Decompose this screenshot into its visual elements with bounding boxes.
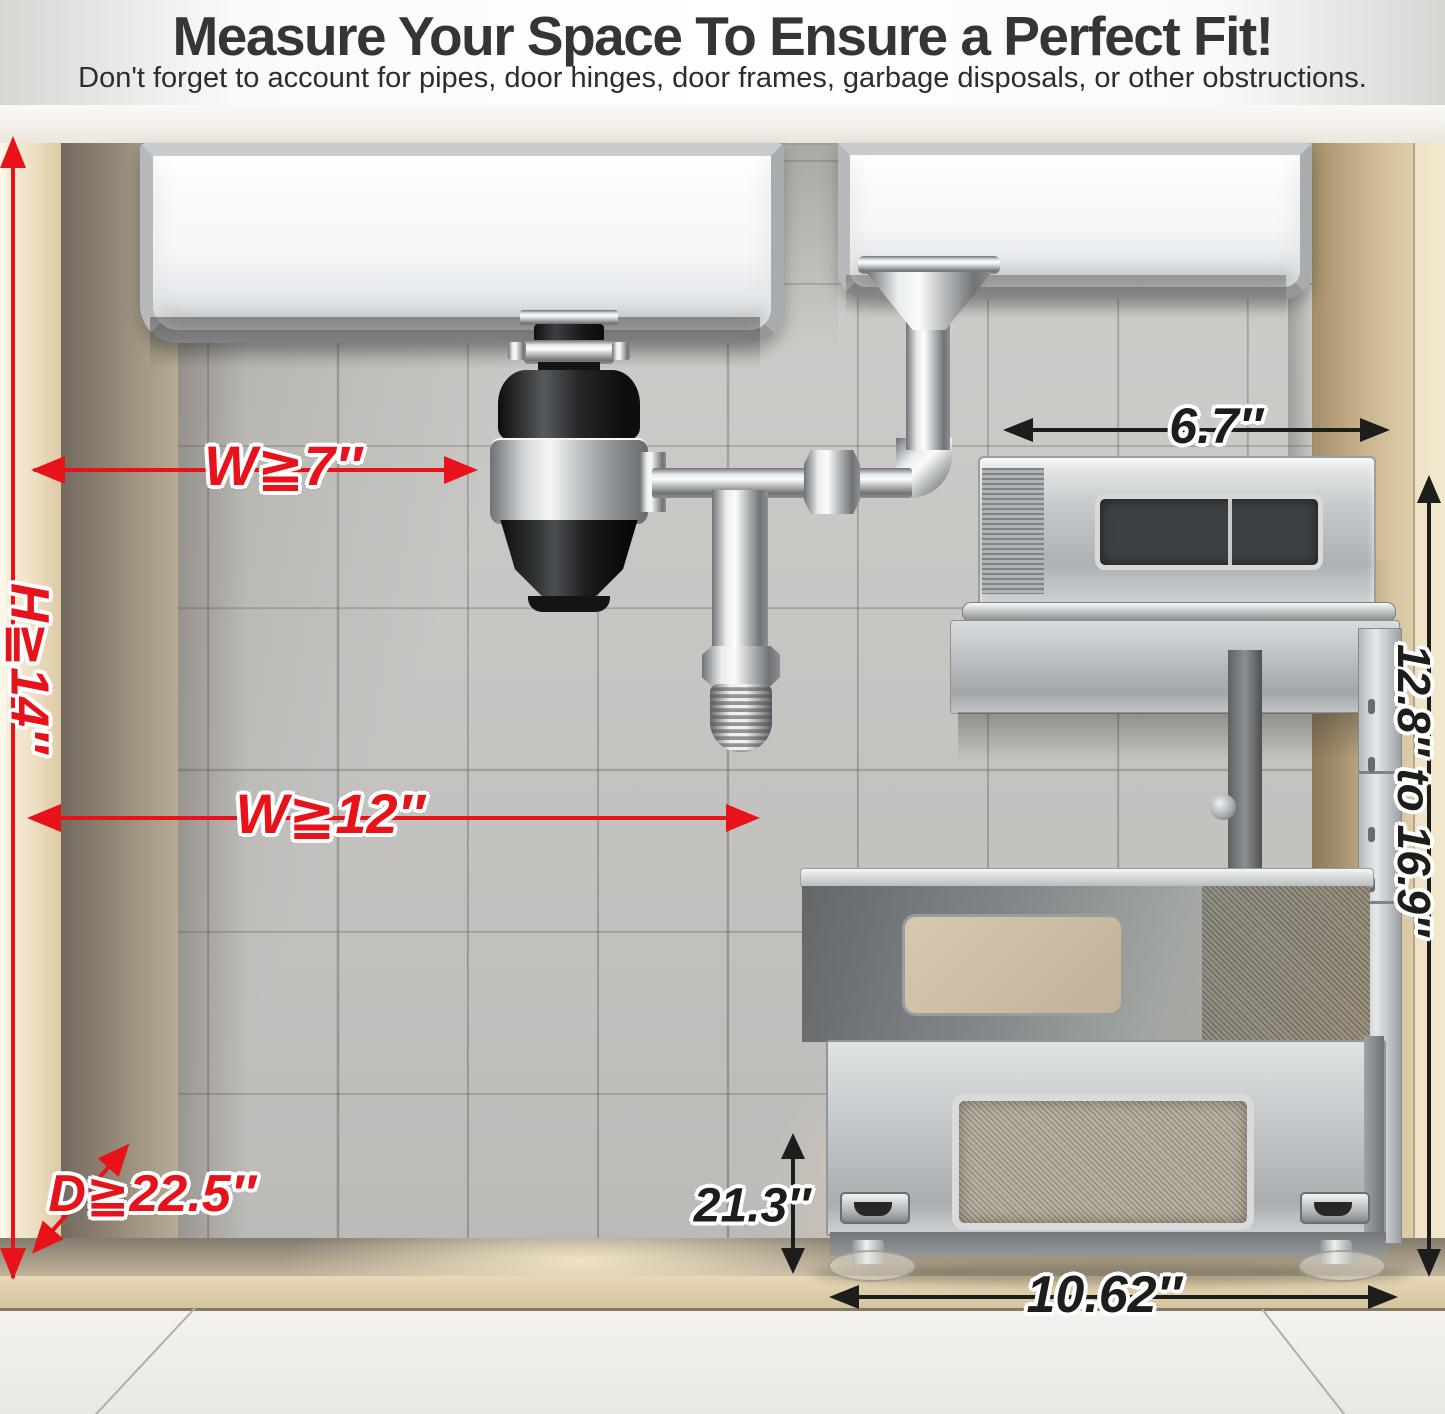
arrowhead-left-icon (24, 804, 61, 832)
slide-clip-opening (1314, 1202, 1352, 1216)
arrowhead-up-icon (0, 133, 26, 168)
trap-hex-adapter (702, 646, 780, 686)
rack-height-range-label: 12.8″ to 16.9″ (1387, 644, 1441, 936)
arrowhead-up-icon (1417, 472, 1441, 503)
garbage-disposal-chrome-band (490, 438, 648, 524)
bottom-rack-depth-label: 21.3″ (694, 1179, 810, 1234)
bottom-rack-rim (800, 868, 1374, 888)
threaded-trap-adapter (710, 684, 772, 752)
header-band: Measure Your Space To Ensure a Perfect F… (0, 0, 1445, 105)
slide-clip (1300, 1192, 1370, 1224)
top-rack-window-divider (1228, 499, 1232, 565)
garbage-disposal-top (498, 370, 640, 442)
bottom-rack-base-cutout (902, 914, 1124, 1016)
arrowhead-left-icon (1000, 418, 1033, 442)
left-sink-bowl (140, 143, 784, 343)
bottom-rack-side-mesh (1202, 886, 1370, 1042)
arrowhead-up-icon (781, 1130, 805, 1159)
trap-drop-pipe (712, 490, 768, 652)
top-rack-side-mesh (982, 468, 1044, 594)
top-rack-slide-rail (962, 602, 1396, 622)
arrowhead-left-icon (28, 456, 65, 484)
slide-clip (840, 1192, 910, 1224)
disposal-clamp-ring (524, 340, 614, 364)
infographic-canvas: Measure Your Space To Ensure a Perfect F… (0, 0, 1445, 1414)
post-adjustment-hole (1368, 699, 1375, 714)
cabinet-width-label: W≧12″ (236, 781, 425, 847)
rail-screw (1210, 794, 1236, 820)
arrowhead-right-icon (1360, 418, 1393, 442)
left-sink-shadow (150, 317, 760, 369)
arrowhead-left-icon (826, 1285, 859, 1309)
arrowhead-down-icon (1417, 1249, 1441, 1280)
bottom-rack-window (952, 1094, 1254, 1230)
pipe-union-nut (804, 450, 860, 514)
arrowhead-right-icon (444, 456, 481, 484)
disposal-clamp-tab (612, 342, 630, 360)
top-rack-shadow (958, 712, 1398, 760)
arrowhead-right-icon (726, 804, 763, 832)
horizontal-drain-pipe (652, 468, 912, 498)
post-adjustment-hole (1368, 757, 1375, 772)
garbage-disposal-cap (528, 596, 610, 612)
page-subtitle: Don't forget to account for pipes, door … (0, 62, 1445, 95)
bottom-rack-base (830, 1232, 1386, 1256)
cabinet-depth-label: D≧22.5″ (48, 1164, 255, 1224)
arrowhead-down-icon (0, 1248, 26, 1283)
arrowhead-down-icon (781, 1248, 805, 1277)
foot-suction-base (1298, 1250, 1386, 1282)
page-title: Measure Your Space To Ensure a Perfect F… (0, 4, 1445, 68)
foot-suction-base (828, 1250, 916, 1282)
countertop-underside (0, 105, 1445, 145)
arrowhead-right-icon (1368, 1285, 1401, 1309)
right-sink-drain-pipe (906, 322, 950, 450)
top-rack-platform (950, 620, 1400, 714)
disposal-width-label: W≧7″ (204, 433, 362, 499)
post-adjustment-hole (1368, 827, 1375, 842)
bottom-rack-width-label: 10.62″ (1026, 1265, 1181, 1325)
drain-flange (858, 256, 1000, 274)
bottom-rack-interior (802, 886, 1370, 1042)
top-rack-window (1095, 494, 1323, 570)
slide-clip-opening (854, 1202, 892, 1216)
cabinet-height-label: H≧14″ (0, 583, 62, 753)
marble-floor (0, 1311, 1445, 1414)
disposal-clamp-tab (508, 342, 526, 360)
top-rack-width-label: 6.7″ (1169, 397, 1262, 455)
